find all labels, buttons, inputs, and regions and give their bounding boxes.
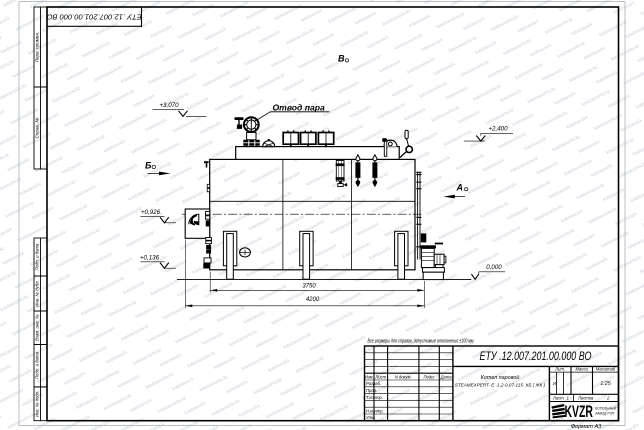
svg-text:ЕТУ .12.007.201.00.000 ВО: ЕТУ .12.007.201.00.000 ВО	[480, 351, 592, 363]
svg-text:Н.контр.: Н.контр.	[366, 408, 384, 413]
svg-text:Формат А3: Формат А3	[571, 424, 602, 430]
svg-text:Котел паровой: Котел паровой	[481, 374, 520, 381]
svg-text:N докум.: N докум.	[395, 374, 412, 379]
svg-text:Масштаб: Масштаб	[596, 367, 616, 372]
svg-text:Перв. примен.: Перв. примен.	[35, 32, 40, 63]
svg-text:КОТЕЛЬНЫЙ: КОТЕЛЬНЫЙ	[595, 407, 617, 411]
svg-text:3750: 3750	[302, 283, 316, 289]
svg-text:4200: 4200	[306, 297, 320, 303]
svg-text:Инв. № дубл.: Инв. № дубл.	[35, 280, 40, 306]
svg-text:Дата: Дата	[440, 374, 453, 379]
svg-text:1: 1	[567, 396, 569, 401]
svg-text:Пров.: Пров.	[366, 388, 377, 393]
svg-text:Утв.: Утв.	[366, 415, 376, 420]
svg-text:Масса: Масса	[576, 367, 589, 372]
svg-text:+2,400: +2,400	[488, 126, 508, 133]
svg-text:В: В	[338, 53, 345, 63]
svg-text:ЕТУ .12.007.201.00.000 ВО: ЕТУ .12.007.201.00.000 ВО	[47, 13, 142, 22]
svg-text:А: А	[456, 182, 464, 192]
svg-text:Лист: Лист	[552, 396, 564, 401]
svg-text:ЗАВОД РЗП: ЗАВОД РЗП	[595, 412, 615, 416]
svg-text:Взам. инв. №: Взам. инв. №	[35, 314, 40, 341]
svg-text:1:25: 1:25	[600, 381, 611, 387]
svg-text:Справ. №: Справ. №	[35, 118, 40, 139]
svg-text:0,000: 0,000	[486, 264, 502, 271]
svg-text:Подп. и дата: Подп. и дата	[35, 243, 40, 271]
svg-text:Отвод пара: Отвод пара	[273, 102, 326, 112]
svg-text:KVZR: KVZR	[565, 403, 594, 421]
svg-text:STEAMEXPERT- Е -1,2-0,07-115-: STEAMEXPERT- Е -1,2-0,07-115- КБ ( ЖК )	[455, 382, 546, 387]
svg-text:Подп.: Подп.	[424, 374, 435, 379]
svg-text:Б: Б	[145, 161, 152, 171]
svg-text:Инв. № подл.: Инв. № подл.	[35, 390, 40, 417]
svg-text:+0,926: +0,926	[141, 209, 161, 216]
svg-text:Все размеры для справок, допус: Все размеры для справок, допустимые откл…	[368, 338, 474, 344]
svg-text:+0,136: +0,136	[140, 255, 160, 262]
svg-text:Лит.: Лит.	[554, 367, 565, 372]
svg-text:Лист: Лист	[374, 374, 386, 379]
svg-text:Разраб.: Разраб.	[366, 381, 381, 386]
svg-text:Изм.: Изм.	[365, 374, 374, 379]
svg-text:+3,070: +3,070	[159, 102, 179, 109]
svg-text:Подп. и дата: Подп. и дата	[35, 352, 40, 380]
svg-text:Листов: Листов	[577, 396, 594, 401]
svg-text:И: И	[553, 381, 556, 386]
svg-text:Т.контр.: Т.контр.	[366, 395, 383, 400]
